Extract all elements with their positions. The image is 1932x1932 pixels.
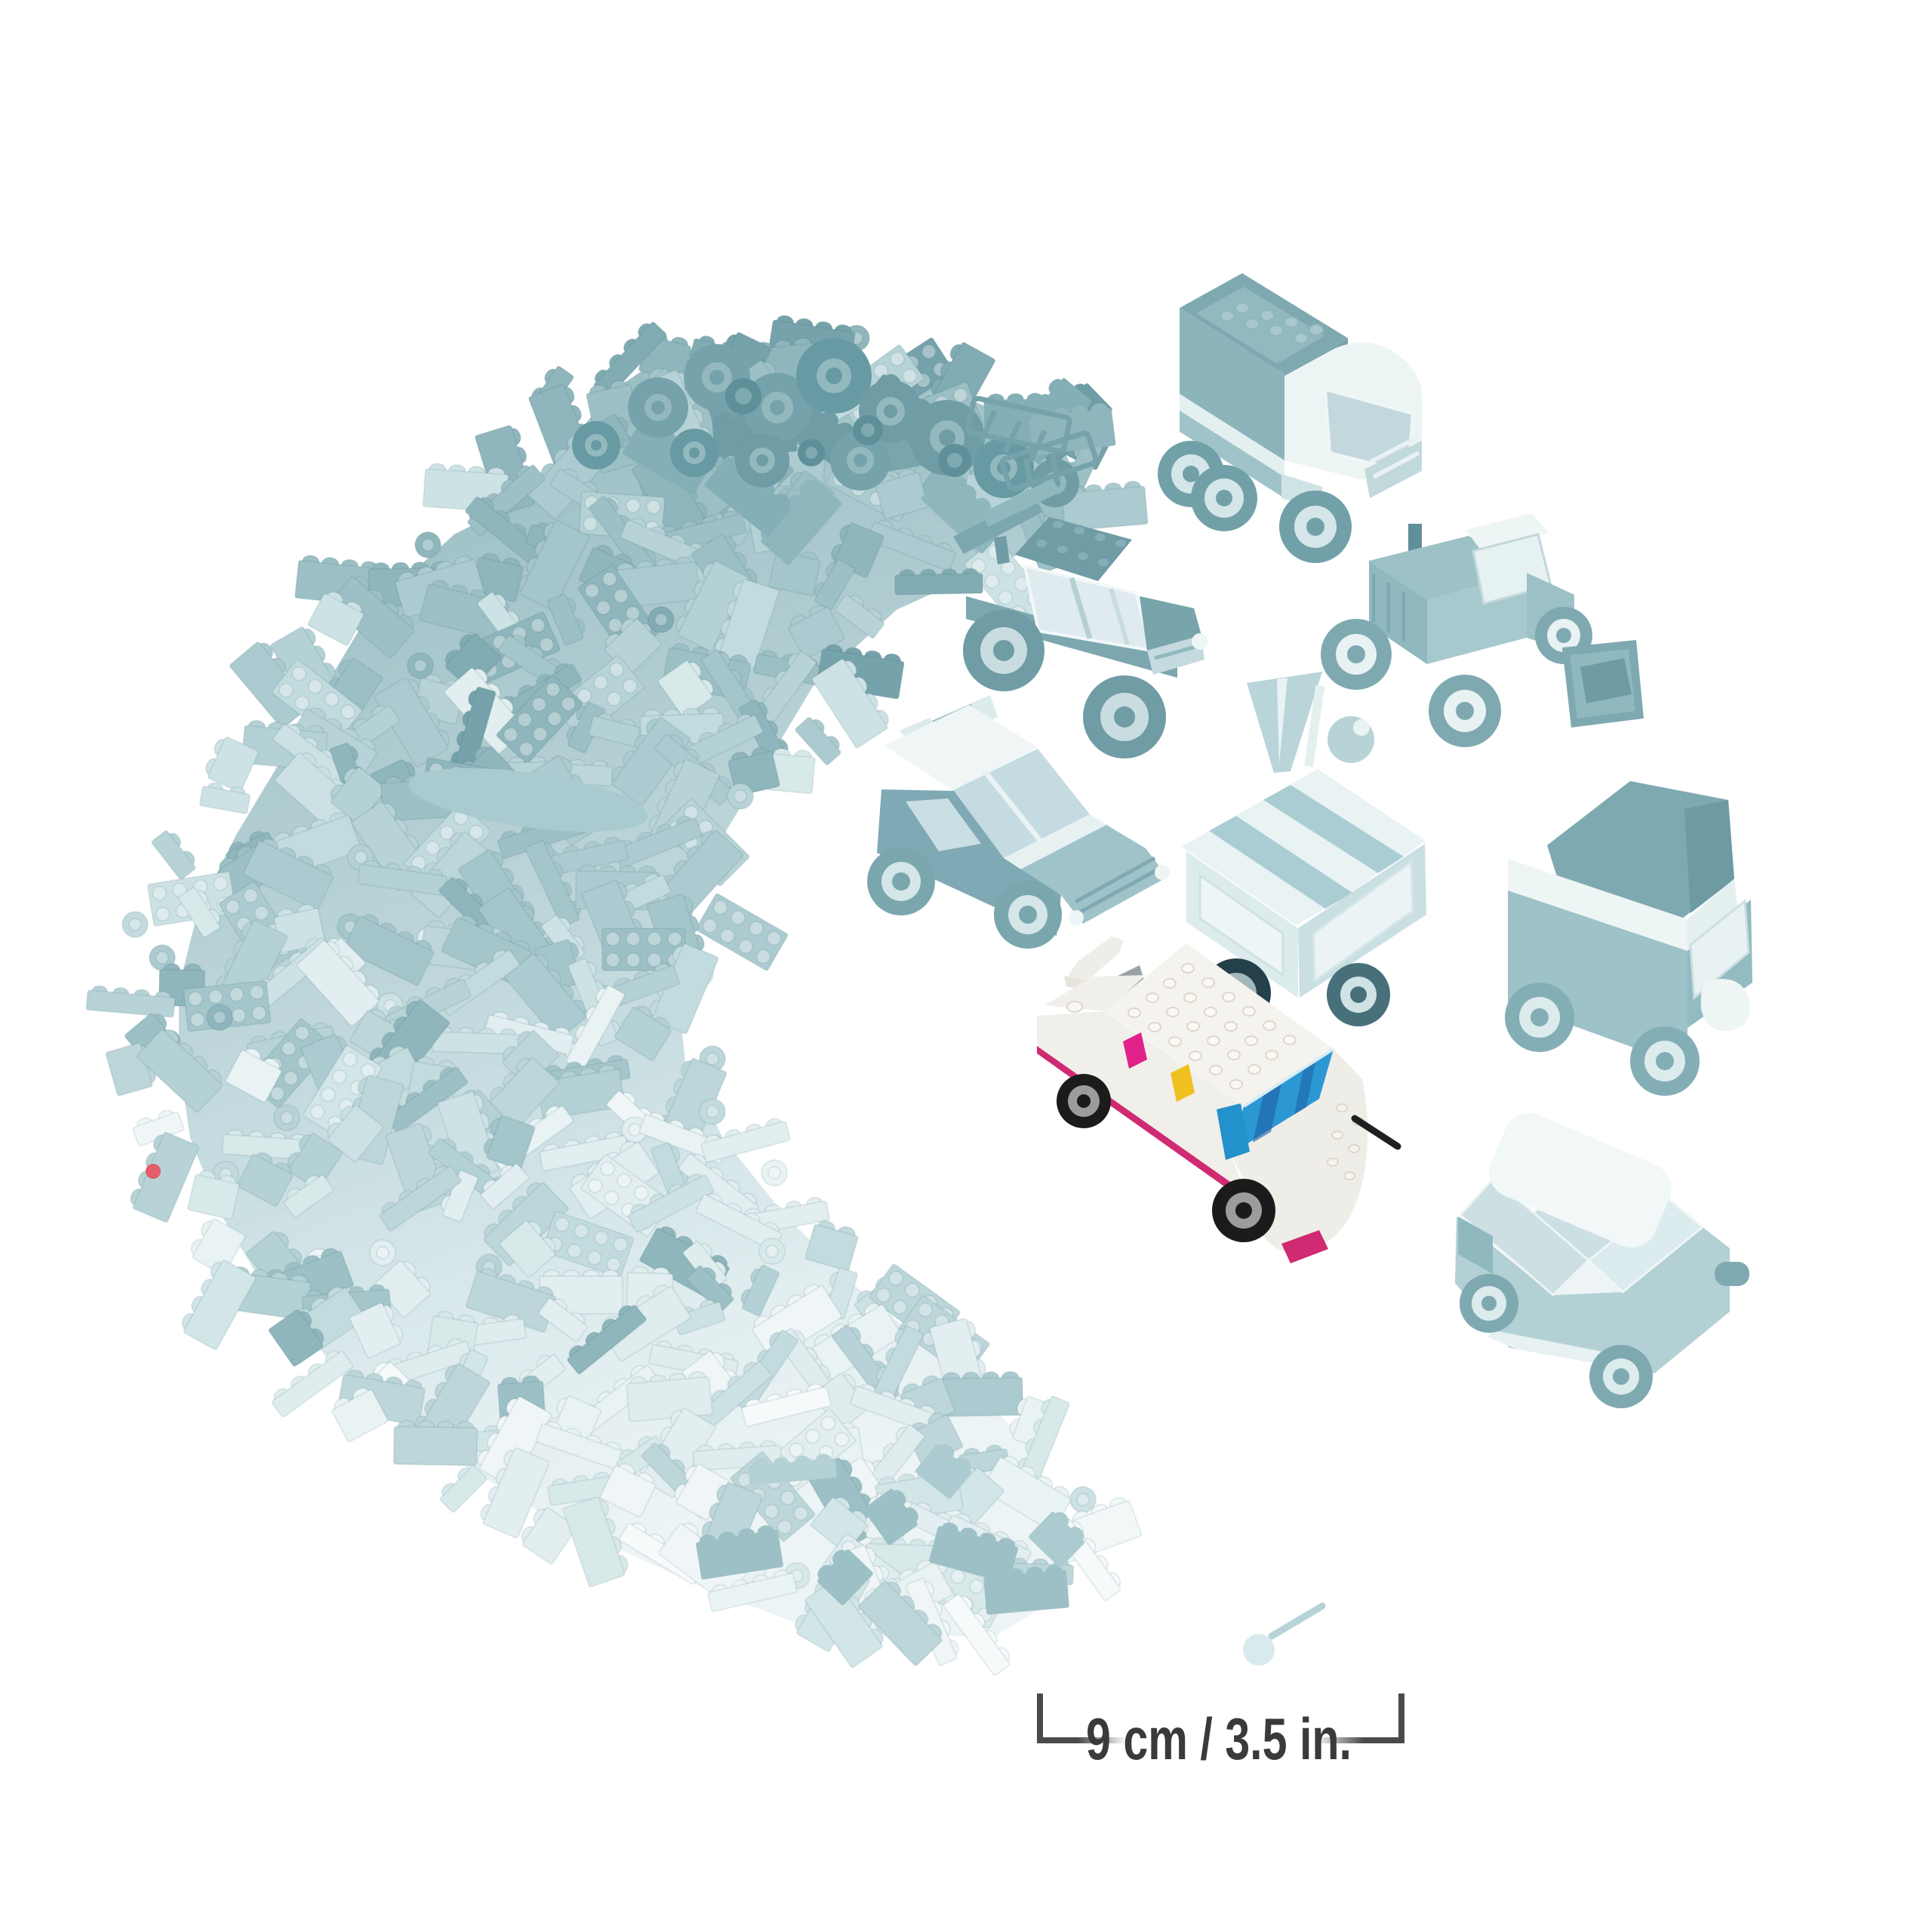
- svg-text:9 cm / 3.5 in.: 9 cm / 3.5 in.: [1086, 1706, 1352, 1772]
